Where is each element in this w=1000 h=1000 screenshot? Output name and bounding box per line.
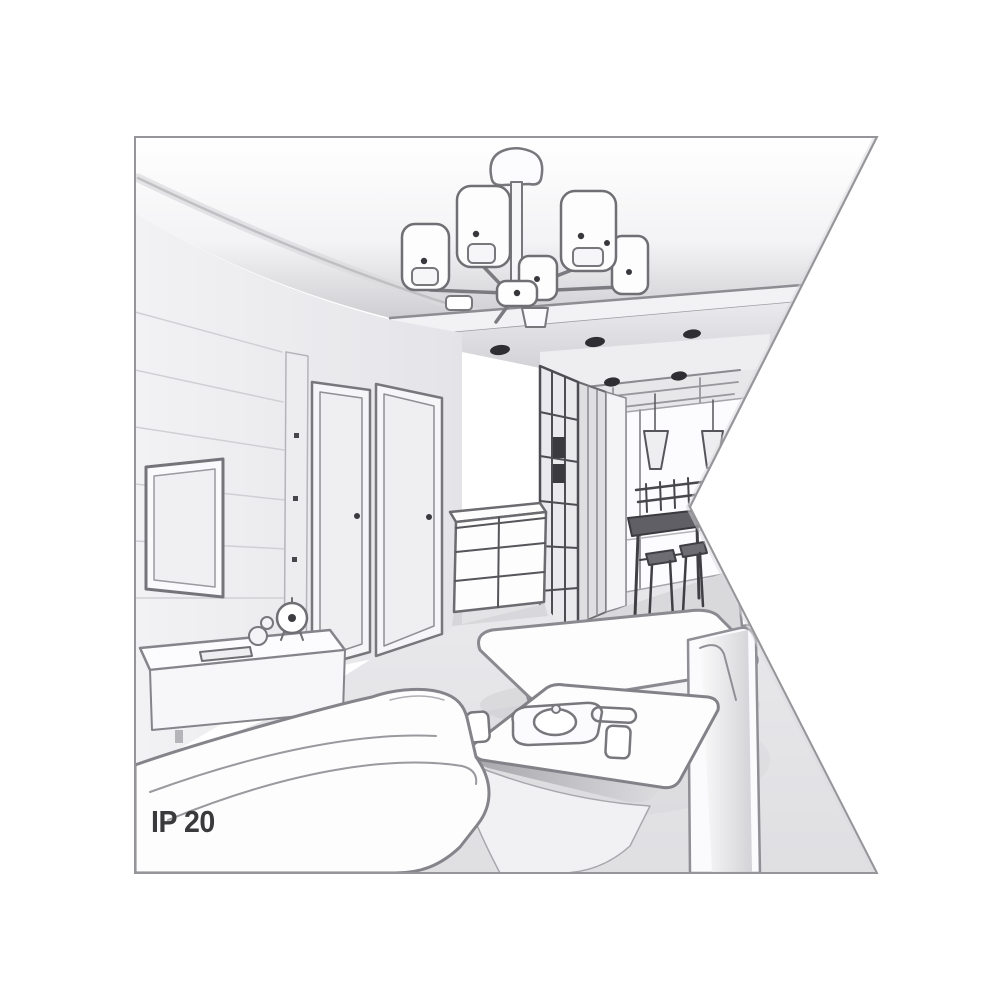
hall-column <box>606 392 626 612</box>
interior-door <box>312 382 370 668</box>
ip-rating-label: IP 20 <box>151 804 215 840</box>
interior-door-2 <box>376 384 442 656</box>
tv <box>146 459 223 597</box>
door-handle <box>426 514 432 520</box>
sliding-wardrobe <box>540 366 606 650</box>
cup <box>605 725 631 758</box>
canopy <box>491 148 543 185</box>
drawer-cabinet <box>450 503 548 626</box>
door-handle <box>354 513 360 519</box>
room-illustration-wrap: IP 20 <box>0 0 1000 1000</box>
room-illustration <box>0 0 1000 1000</box>
product-image: IP 20 <box>0 0 1000 1000</box>
